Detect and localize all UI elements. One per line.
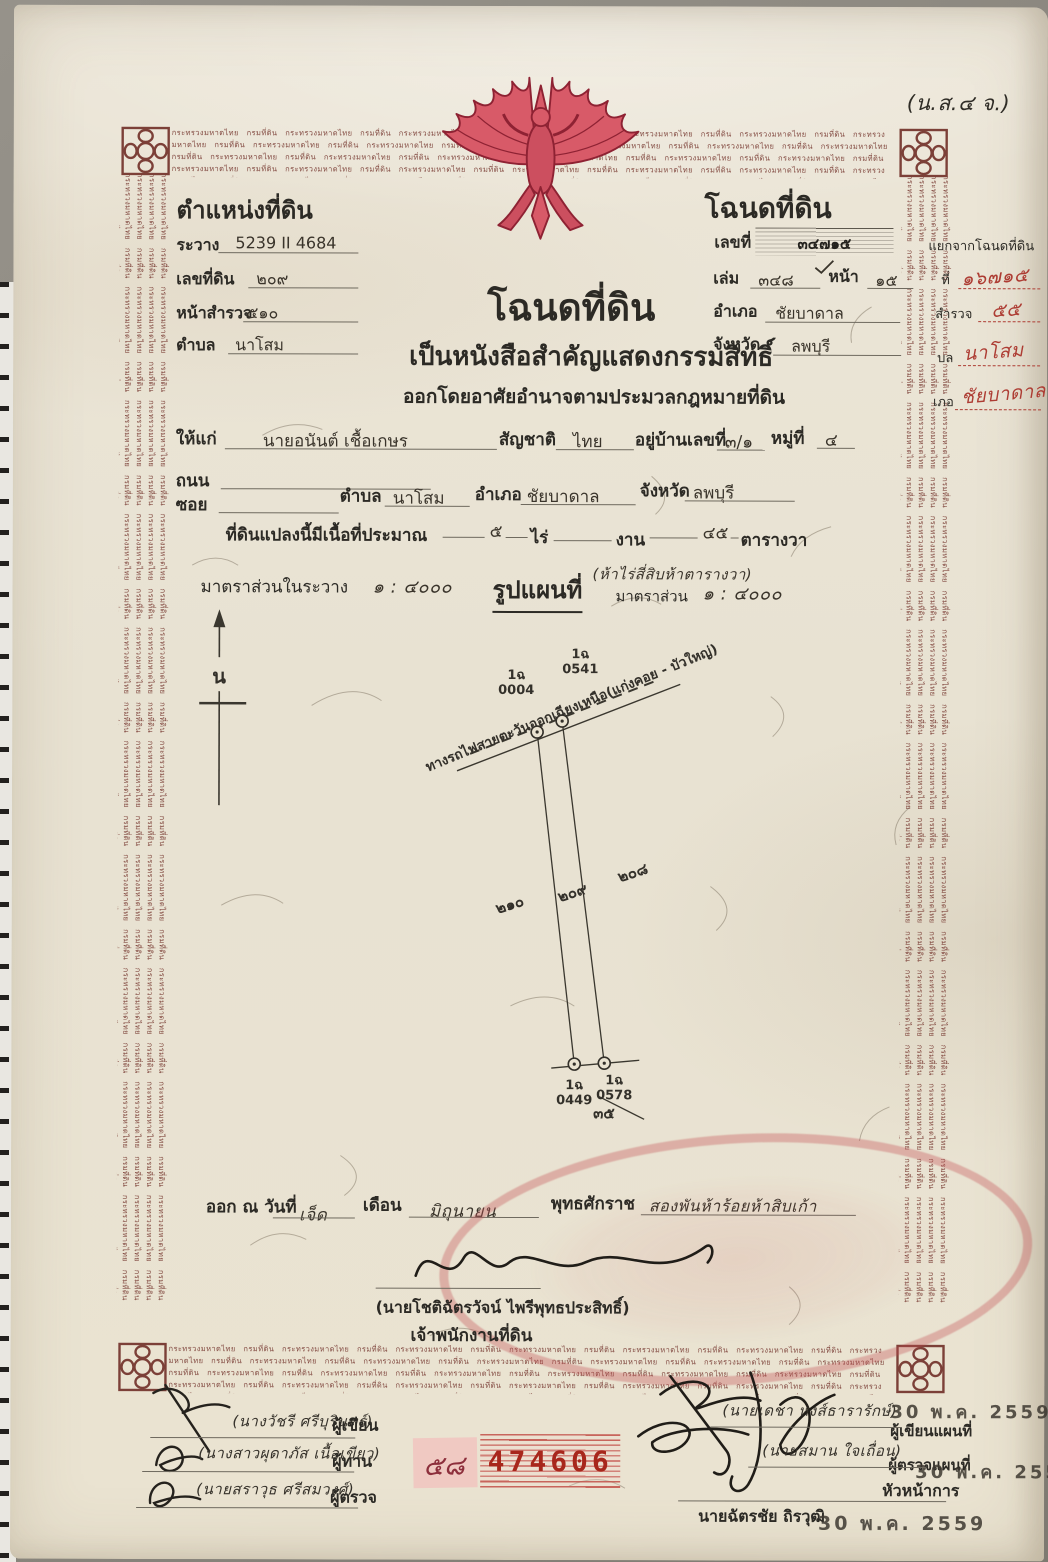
amphoe-value: ชัยบาดาล (775, 302, 844, 327)
moo-value: ๔ (825, 427, 838, 454)
margin-split-label: แยกจากโฉนดที่ดิน (928, 235, 1034, 256)
issued-prefix: ออก ณ วันที่ (206, 1193, 297, 1220)
subtitle-authority: ออกโดยอาศัยอำนาจตามประมวลกฎหมายที่ดิน (403, 382, 785, 413)
page-label: หน้า (828, 265, 859, 290)
parcel-left-number: ๒๑๐ (493, 892, 526, 918)
serial-number-box: 474606 (480, 1434, 620, 1488)
grantee-tambon-label: ตำบล (340, 483, 382, 510)
left-block-title: ตำแหน่งที่ดิน (176, 190, 312, 229)
margin-tambon-label: บล (937, 347, 953, 368)
scale-value: ๑ : ๔๐๐๐ (372, 572, 452, 601)
right-block-title: โฉนดที่ดิน (704, 186, 831, 230)
marker-tr-number: 0541 (562, 662, 598, 677)
rawang-value: 5239 II 4684 (235, 233, 336, 252)
marker-bl-number: 0449 (556, 1093, 592, 1108)
corner-ornament-top-left (120, 125, 172, 177)
margin-tambon-value: นาโสม (962, 335, 1024, 369)
month-label: เดือน (363, 1192, 402, 1219)
margin-no-label: ที่ (941, 269, 950, 290)
chief-date-stamp: 30 พ.ค. 2559 (818, 1509, 986, 1539)
volume-value: ๓๔๘ (758, 269, 793, 294)
land-no-label: เลขที่ดิน (176, 267, 234, 292)
grantee-province-value: ลพบุรี (693, 479, 735, 506)
serial-number: 474606 (480, 1445, 620, 1478)
serial-sticker: ๕๘ (413, 1437, 478, 1488)
main-title: โฉนดที่ดิน (487, 278, 655, 337)
north-letter: น (212, 664, 226, 688)
page-value: ๑๕ (875, 269, 897, 294)
officer-title: เจ้าพนักงานที่ดิน (411, 1322, 533, 1349)
garuda-emblem (411, 72, 669, 255)
rawang-label: ระวาง (176, 233, 219, 258)
tambon-value: นาโสม (235, 333, 284, 358)
marker-tl-number: 0004 (498, 683, 534, 698)
map-writer-role: ผู้เขียนแผนที่ (890, 1419, 972, 1443)
moo-label: หมู่ที่ (771, 425, 805, 452)
address-no-value: ๓/๑ (725, 429, 753, 456)
map-bottom-number: ๓๕ (593, 1104, 615, 1122)
survey-page-value: ๕๑๐ (246, 301, 278, 326)
marker-br-number: 0578 (596, 1088, 632, 1103)
margin-amphoe-label: เภอ (933, 391, 954, 412)
scale2-value: ๑ : ๔๐๐๐ (702, 578, 782, 607)
nationality-value: ไทย (573, 428, 603, 455)
area-rai-label: ไร่ (531, 524, 549, 551)
given-to-label: ให้แก่ (176, 425, 217, 452)
map-writer-name: (นายเดชา หงส์ธารารักษ์) (722, 1399, 897, 1423)
grantee-amphoe-label: อำเภอ (475, 481, 522, 508)
survey-map: น ทางรถไฟสายตะวันออกเฉียงเหนือ(แก่งคอย -… (161, 605, 912, 1147)
marker-tr-code: 1ฉ (571, 647, 589, 662)
marker-br-code: 1ฉ (605, 1073, 623, 1088)
parcel-right-number: ๒๐๘ (615, 859, 650, 886)
margin-survey-label: สำรวจ (935, 303, 972, 324)
deed-no-value: ๓๔๗๑๕ (755, 232, 893, 256)
area-ngan-label: งาน (616, 526, 646, 553)
tambon-label: ตำบล (176, 333, 215, 358)
deed-number-box: ๓๔๗๑๕ (755, 228, 893, 256)
address-label: อยู่บ้านเลขที่ (635, 426, 726, 453)
grantee-province-label: จังหวัด (640, 477, 690, 504)
corner-ornament-top-right (898, 127, 950, 179)
deed-paper: กระทรวงมหาดไทย กรมที่ดิน กระทรวงมหาดไทย … (10, 5, 1048, 1562)
land-no-value: ๒๐๙ (256, 267, 288, 292)
writer-role: ผู้เขียน (332, 1413, 378, 1438)
province-value: ลพบุรี (791, 335, 830, 360)
marker-bl-code: 1ฉ (565, 1078, 583, 1093)
issued-day-value: เจ็ด (299, 1201, 327, 1228)
marker-tl-code: 1ฉ (507, 668, 525, 683)
amphoe-label: อำเภอ (713, 299, 757, 324)
form-code: (น.ส.๔ จ.) (907, 87, 1011, 120)
survey-page-label: หน้าสำรวจ (176, 301, 252, 326)
serial-handwritten: ๕๘ (423, 1443, 465, 1487)
volume-label: เล่ม (713, 266, 739, 291)
area-wah-value: ๔๕ (703, 519, 729, 546)
nationality-label: สัญชาติ (499, 426, 556, 453)
grantee-name: นายอนันต์ เชื้อเกษร (263, 427, 408, 454)
map-checker-name: (นายสมาน ใจเถื่อน) (762, 1439, 901, 1463)
soi-label: ซอย (176, 491, 208, 518)
grantee-tambon-value: นาโสม (393, 485, 445, 512)
subtitle-ownership: เป็นหนังสือสำคัญแสดงกรรมสิทธิ์ (409, 336, 773, 378)
scale-label: มาตราส่วนในระวาง (200, 573, 348, 600)
deed-no-label: เลขที่ (714, 230, 751, 255)
scale2-label: มาตราส่วน (615, 584, 687, 608)
chief-name: นายฉัตรชัย ถิรวุฒิ (698, 1504, 825, 1529)
area-prefix: ที่ดินแปลงนี้มีเนื้อที่ประมาณ (226, 521, 428, 549)
area-rai-value: ๕ (490, 518, 503, 545)
photo-background: กระทรวงมหาดไทย กรมที่ดิน กระทรวงมหาดไทย … (0, 0, 1048, 1562)
officer-name: (นายโชติฉัตรวัจน์ ไพรีพุทธประสิทธิ์) (376, 1296, 630, 1322)
grantee-amphoe-value: ชัยบาดาล (527, 483, 600, 510)
area-wah-label: ตารางวา (741, 527, 808, 554)
